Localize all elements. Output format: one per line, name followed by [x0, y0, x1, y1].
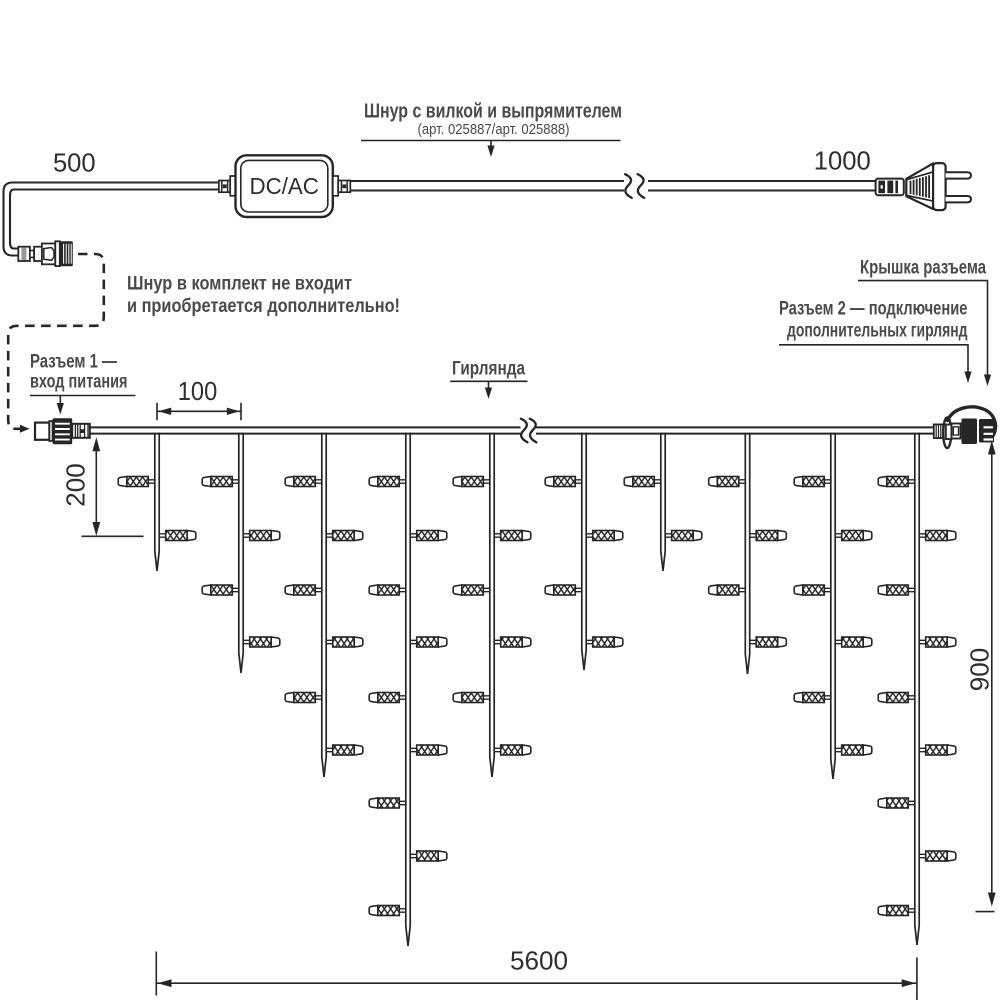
svg-text:(арт. 025887/арт. 025888): (арт. 025887/арт. 025888): [418, 121, 570, 138]
svg-text:200: 200: [61, 463, 91, 506]
svg-text:Шнур с вилкой и выпрямителем: Шнур с вилкой и выпрямителем: [364, 101, 622, 123]
svg-text:1000: 1000: [814, 146, 871, 176]
svg-text:и приобретается дополнительно!: и приобретается дополнительно!: [127, 295, 400, 317]
svg-text:Разъем 1 —: Разъем 1 —: [30, 352, 117, 373]
svg-text:900: 900: [964, 648, 994, 691]
svg-text:500: 500: [53, 148, 96, 178]
svg-text:Шнур в комплект не входит: Шнур в комплект не входит: [127, 273, 352, 295]
svg-text:Разъем 2 — подключение: Разъем 2 — подключение: [779, 299, 968, 320]
svg-text:5600: 5600: [510, 946, 568, 976]
svg-text:DC/AC: DC/AC: [249, 173, 319, 199]
svg-text:вход питания: вход питания: [30, 372, 128, 393]
svg-text:100: 100: [178, 376, 218, 406]
svg-text:дополнительных гирлянд: дополнительных гирлянд: [787, 321, 968, 342]
svg-text:Гирлянда: Гирлянда: [452, 359, 525, 380]
svg-text:Крышка разъема: Крышка разъема: [860, 258, 986, 279]
